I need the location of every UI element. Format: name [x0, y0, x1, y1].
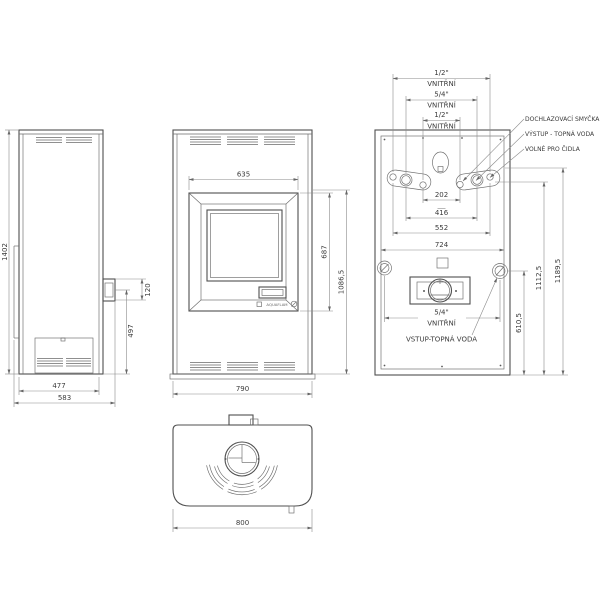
- rear-height-dimensions: 610,5 1112,5 1189,5: [495, 168, 568, 375]
- callout-input-heating-water: VSTUP-TOPNÁ VODA: [406, 335, 477, 344]
- side-top-vents: [36, 138, 92, 143]
- dim-side-depth-total: 583: [58, 394, 71, 402]
- dim-panel-width: 724: [435, 241, 449, 249]
- dim-thread-inner-type: VNITŘNÍ: [427, 122, 456, 131]
- front-view: AQUAFLAM 635 790: [170, 130, 350, 398]
- flue-collar: [225, 442, 260, 476]
- dim-thread-mid-size: 5/4": [434, 91, 449, 99]
- dim-inlet-height: 610,5: [515, 313, 523, 333]
- side-bottom-vent-panel: [35, 338, 93, 373]
- top-flue-stub: [229, 415, 253, 425]
- dim-conn-inner: 202: [435, 191, 448, 199]
- side-flue-stub: [103, 279, 115, 301]
- dim-thread-outer-type: VNITŘNÍ: [427, 79, 456, 88]
- dim-door-height: 687: [321, 245, 329, 258]
- dim-front-width-total: 790: [236, 385, 249, 393]
- dim-upper-conn-height: 1112,5: [535, 266, 543, 291]
- front-dimensions: 635 790 687 1086,5: [173, 171, 350, 399]
- rear-view: 1/2" VNITŘNÍ 5/4" VNITŘNÍ 1/2" VNITŘNÍ D…: [375, 69, 600, 375]
- water-inlet-left: [378, 261, 392, 275]
- front-bottom-vents: [190, 363, 295, 371]
- front-body: [173, 130, 312, 374]
- dim-thread-mid-type: VNITŘNÍ: [427, 101, 456, 110]
- top-arc-vents: [207, 465, 278, 495]
- side-body: [19, 130, 103, 374]
- side-view: 477 583 1402 120 497: [1, 130, 152, 407]
- rear-inlet-dimension: 5/4" VNITŘNÍ VSTUP-TOPNÁ VODA: [385, 276, 501, 344]
- dim-conn-outer: 552: [435, 224, 448, 232]
- dim-side-stub-height: 497: [127, 324, 135, 337]
- door-window: [207, 210, 282, 281]
- dim-door-top-height: 1086,5: [338, 270, 346, 295]
- door-handle: [259, 287, 286, 298]
- side-door-edge: [14, 246, 19, 338]
- rear-top-dimensions: 1/2" VNITŘNÍ 5/4" VNITŘNÍ 1/2" VNITŘNÍ: [393, 69, 490, 180]
- dim-side-stub-size: 120: [144, 283, 152, 296]
- top-body: [173, 425, 312, 506]
- stove-technical-drawing: 477 583 1402 120 497: [0, 0, 600, 600]
- top-sensor-boss: [251, 419, 259, 425]
- rear-square-knockout: [437, 258, 448, 268]
- rear-spacing-dimensions: 202 416 552 724: [381, 183, 504, 268]
- dim-top-width-total: 800: [236, 519, 249, 527]
- technical-drawing-page: 477 583 1402 120 497: [0, 0, 600, 600]
- brand-logo: AQUAFLAM: [257, 302, 288, 307]
- dim-door-width: 635: [237, 171, 250, 179]
- top-rear-tab: [289, 506, 294, 513]
- door-latch: [291, 301, 297, 307]
- dim-side-depth-body: 477: [52, 382, 65, 390]
- dim-thread-inner-size: 1/2": [434, 111, 449, 119]
- dim-side-height-total: 1402: [1, 243, 9, 261]
- dim-top-conn-height: 1189,5: [554, 259, 562, 284]
- rear-oval-opening: [433, 152, 449, 173]
- front-base: [170, 374, 315, 379]
- callout-cooling-loop: DOCHLAZOVACÍ SMYČKA: [525, 116, 600, 123]
- front-door: AQUAFLAM: [189, 193, 298, 311]
- callout-free-for-sensors: VOLNÉ PRO ČIDLA: [525, 145, 581, 153]
- dim-inlet-thread-size: 5/4": [434, 309, 449, 317]
- callout-output-heating-water: VÝSTUP - TOPNÁ VODA: [525, 131, 595, 138]
- front-top-vents: [190, 137, 295, 145]
- water-inlet-right: [493, 264, 508, 279]
- top-dimensions: 800: [173, 509, 312, 532]
- brand-logo-text: AQUAFLAM: [266, 302, 287, 307]
- dim-conn-mid: 416: [435, 209, 449, 217]
- rear-flue-plate: [410, 277, 470, 304]
- rear-connection-plate-right: [455, 169, 501, 191]
- dim-thread-outer-size: 1/2": [434, 69, 449, 77]
- side-dimensions: 477 583 1402 120 497: [1, 130, 152, 407]
- top-view: 800: [173, 415, 312, 532]
- dim-inlet-thread-type: VNITŘNÍ: [427, 319, 456, 328]
